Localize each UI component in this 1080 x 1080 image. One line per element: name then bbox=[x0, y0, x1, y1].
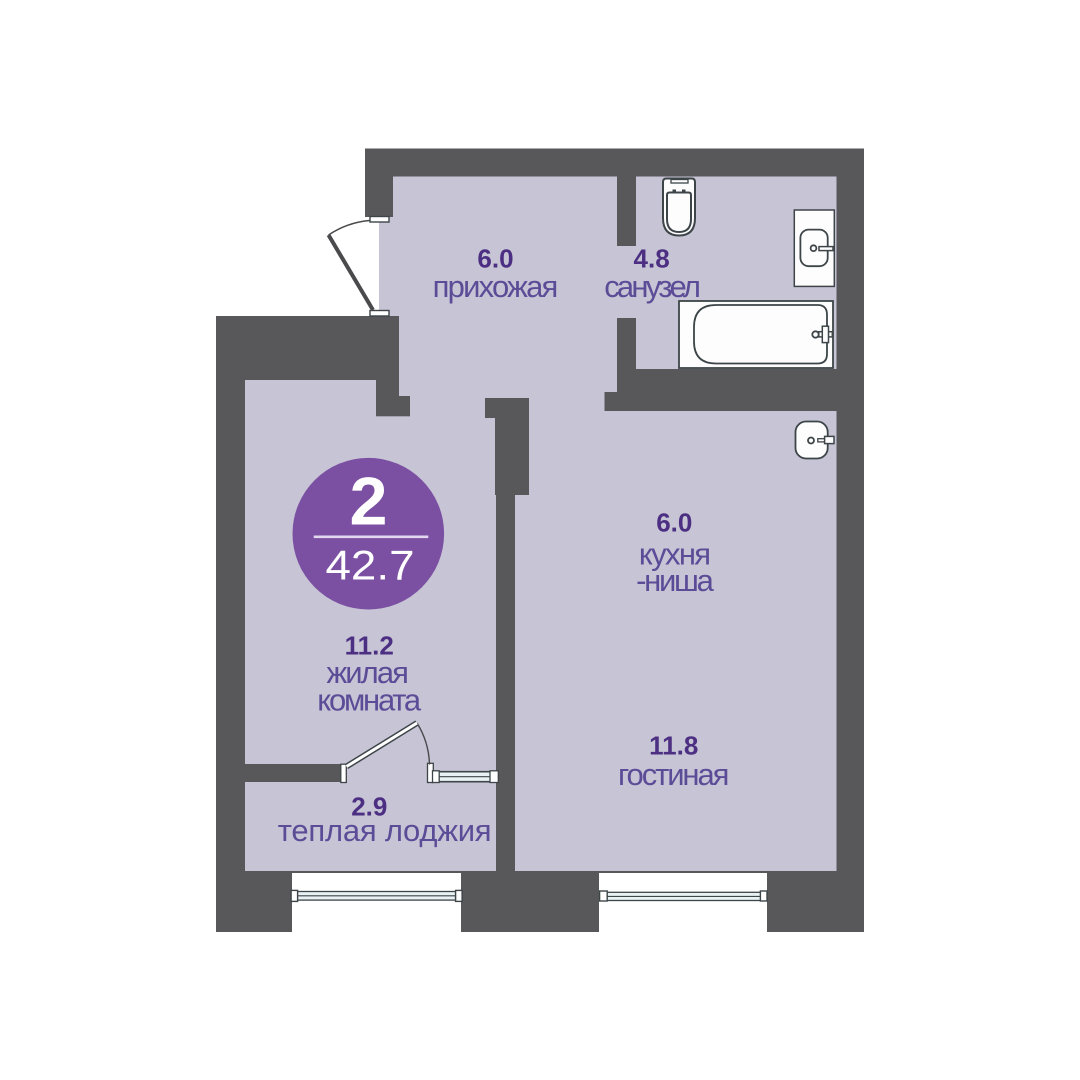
svg-text:санузел: санузел bbox=[604, 269, 701, 304]
svg-text:6.0: 6.0 bbox=[656, 507, 692, 537]
svg-text:11.8: 11.8 bbox=[649, 730, 698, 760]
svg-text:2: 2 bbox=[350, 464, 388, 540]
svg-text:теплая лоджия: теплая лоджия bbox=[278, 813, 492, 848]
svg-text:гостиная: гостиная bbox=[618, 757, 729, 792]
svg-text:42.7: 42.7 bbox=[326, 542, 415, 589]
svg-text:прихожая: прихожая bbox=[433, 269, 559, 304]
svg-text:-ниша: -ниша bbox=[636, 563, 715, 598]
svg-text:комната: комната bbox=[317, 683, 422, 718]
